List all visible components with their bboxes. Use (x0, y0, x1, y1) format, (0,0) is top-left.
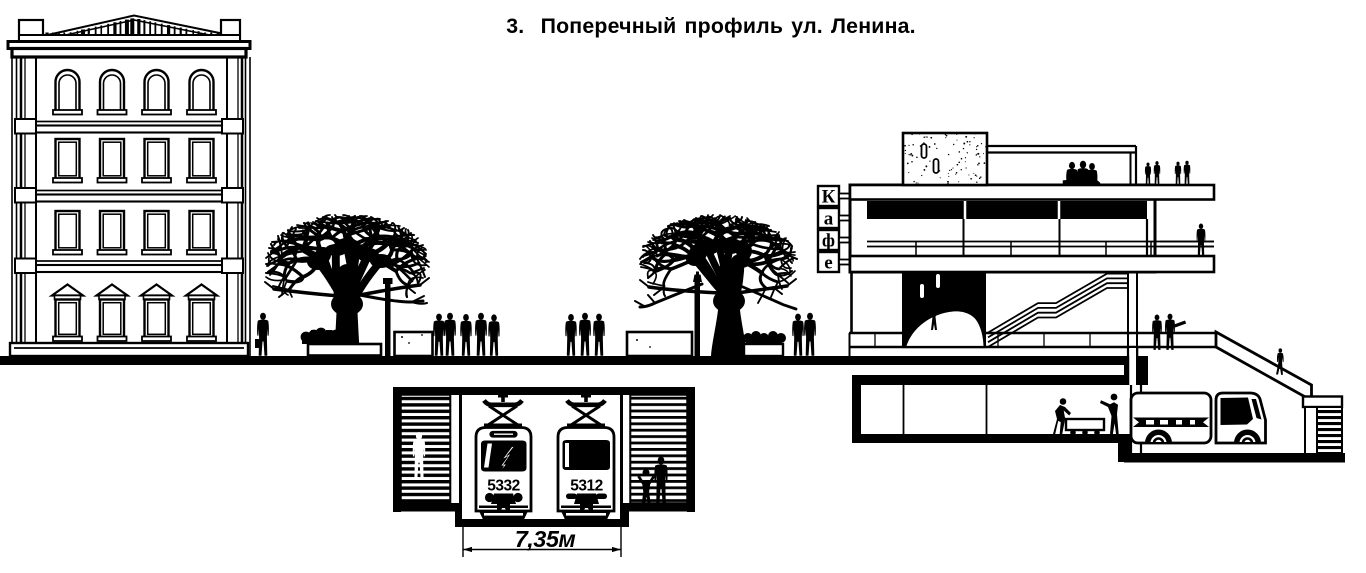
svg-text:3. Поперечный профиль ул. Лен: 3. Поперечный профиль ул. Ленина. (506, 14, 916, 38)
svg-text:а: а (824, 209, 834, 230)
svg-text:ф: ф (822, 231, 835, 252)
svg-text:5332: 5332 (487, 478, 519, 495)
svg-text:К: К (822, 187, 836, 208)
svg-text:7,35м: 7,35м (515, 526, 576, 552)
svg-text:е: е (824, 253, 832, 274)
svg-text:5312: 5312 (570, 478, 602, 495)
